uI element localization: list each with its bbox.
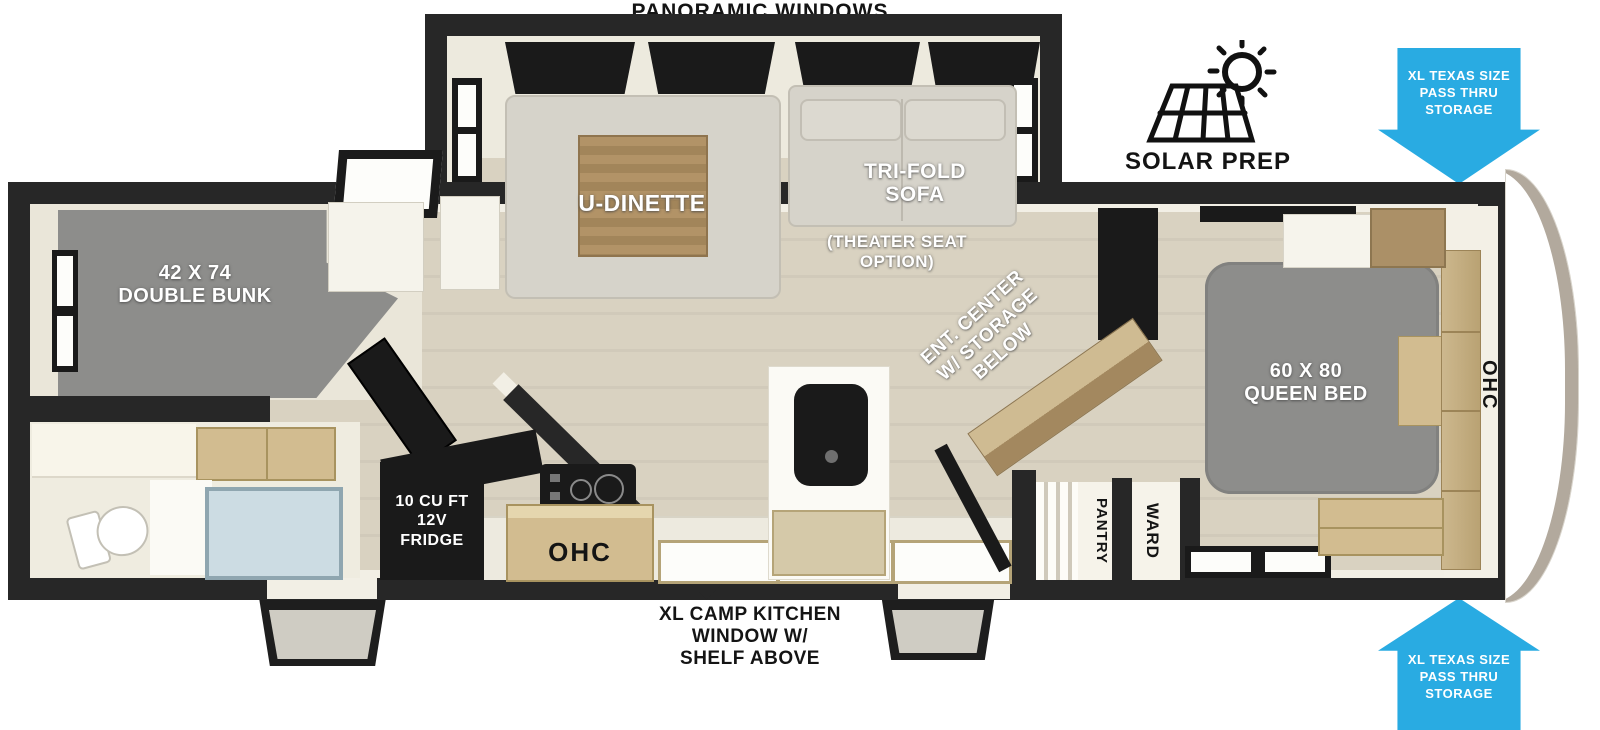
pantry-label: PANTRY [1093, 482, 1110, 580]
bedroom-cabinet-brown [1370, 208, 1446, 268]
bathroom-counter [32, 424, 196, 478]
wardrobe-closet: WARD [1132, 482, 1180, 580]
tri-fold-sofa-label: TRI-FOLD SOFA [815, 160, 1015, 206]
refrigerator: 10 CU FT 12V FRIDGE [380, 462, 484, 580]
queen-bed-label: 60 X 80 QUEEN BED [1206, 360, 1406, 406]
slide-side-window-left [452, 78, 482, 183]
pantry-cabinet: PANTRY [1036, 482, 1112, 580]
pantry-shelves [1036, 482, 1078, 580]
pass-thru-storage-label-top: XL TEXAS SIZE PASS THRU STORAGE [1408, 68, 1510, 184]
bed-foot-dresser [1318, 498, 1444, 556]
wardrobe-strip [1441, 250, 1481, 570]
entry-step-tread [269, 610, 376, 659]
interior-wall [1012, 470, 1036, 580]
interior-wall [1112, 478, 1132, 582]
floorplan-canvas: PANORAMIC WINDOWS SOLAR PREP [0, 0, 1600, 730]
entry-step-left [255, 598, 390, 666]
pass-thru-arrow-down-icon: XL TEXAS SIZE PASS THRU STORAGE [1378, 48, 1540, 184]
bed-shelf [1398, 336, 1442, 426]
bunk-room-cabinet [328, 202, 424, 292]
solar-panel-icon [1138, 40, 1283, 148]
bedroom-cabinet-white [1283, 214, 1373, 268]
kitchen-sink [794, 384, 868, 486]
double-bunk-label: 42 X 74 DOUBLE BUNK [95, 262, 295, 308]
fridge-label: 10 CU FT 12V FRIDGE [395, 492, 468, 550]
slide-end-cabinet [440, 196, 500, 290]
bedroom-rear-window [1185, 546, 1331, 578]
sofa-cushion [800, 99, 902, 141]
sofa-cushion [904, 99, 1006, 141]
door-threshold [267, 578, 377, 599]
bedroom-ohc-label: OHC [1477, 348, 1500, 422]
bathroom-overhead-cabinet [196, 427, 336, 481]
theater-seat-option-label: (THEATER SEAT OPTION) [787, 232, 1007, 273]
panoramic-window [505, 42, 635, 94]
entry-step-right [878, 598, 998, 660]
front-cap [1506, 170, 1578, 602]
solar-prep-label: SOLAR PREP [1108, 148, 1308, 176]
pass-thru-storage-label-bottom: XL TEXAS SIZE PASS THRU STORAGE [1408, 652, 1510, 730]
panoramic-window [648, 42, 775, 94]
camp-kitchen-window-label: XL CAMP KITCHEN WINDOW W/ SHELF ABOVE [600, 604, 900, 670]
ward-label: WARD [1142, 482, 1162, 580]
bunk-room-window [52, 250, 78, 372]
kitchen-overhead-cabinet: OHC [506, 504, 654, 582]
interior-wall [8, 396, 270, 422]
pass-thru-arrow-up-icon: XL TEXAS SIZE PASS THRU STORAGE [1378, 598, 1540, 730]
sink-lower-cabinet [772, 510, 886, 576]
entry-step-tread [892, 610, 984, 653]
kitchen-ohc-label: OHC [548, 537, 612, 568]
u-dinette-label: U-DINETTE [542, 190, 742, 217]
shower-glass-door [205, 487, 343, 580]
faucet [825, 450, 838, 463]
